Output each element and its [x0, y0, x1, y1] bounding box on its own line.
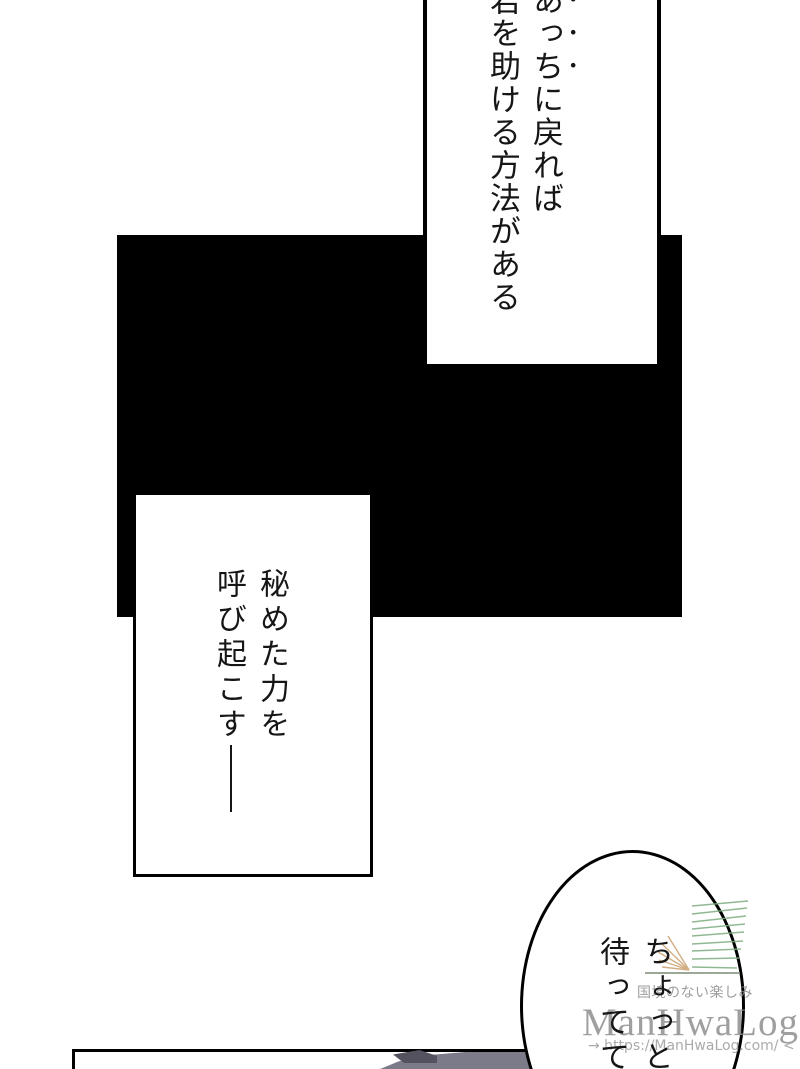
speech-box-top: あっちに戻れば 君を助ける方法がある: [423, 0, 661, 368]
emphasized-text: あっち: [527, 0, 563, 83]
left-box-text: 秘めた力を 呼び起こす: [207, 568, 293, 743]
speech-box-left: 秘めた力を 呼び起こす: [133, 492, 373, 877]
dialogue-line: 待ってて: [589, 936, 633, 1069]
dialogue-line: ちょっと: [633, 936, 677, 1069]
bubble-text: ちょっと 待ってて: [589, 936, 677, 1069]
panel-bottom: [72, 1049, 602, 1069]
dialogue-line: あっちに戻れば: [523, 0, 582, 314]
dialogue-line: 呼び起こす: [207, 568, 250, 743]
dialogue-line: 秘めた力を: [250, 568, 293, 743]
top-box-text: あっちに戻れば 君を助ける方法がある: [480, 0, 582, 314]
long-dash: [230, 745, 232, 812]
dialogue-line: 君を助ける方法がある: [480, 0, 523, 314]
character-hair-spike: [393, 1050, 437, 1063]
comic-page: あっちに戻れば 君を助ける方法がある 秘めた力を 呼び起こす ちょっと 待ってて: [0, 0, 800, 1069]
dialogue-line-rest: に戻れば: [527, 83, 563, 215]
